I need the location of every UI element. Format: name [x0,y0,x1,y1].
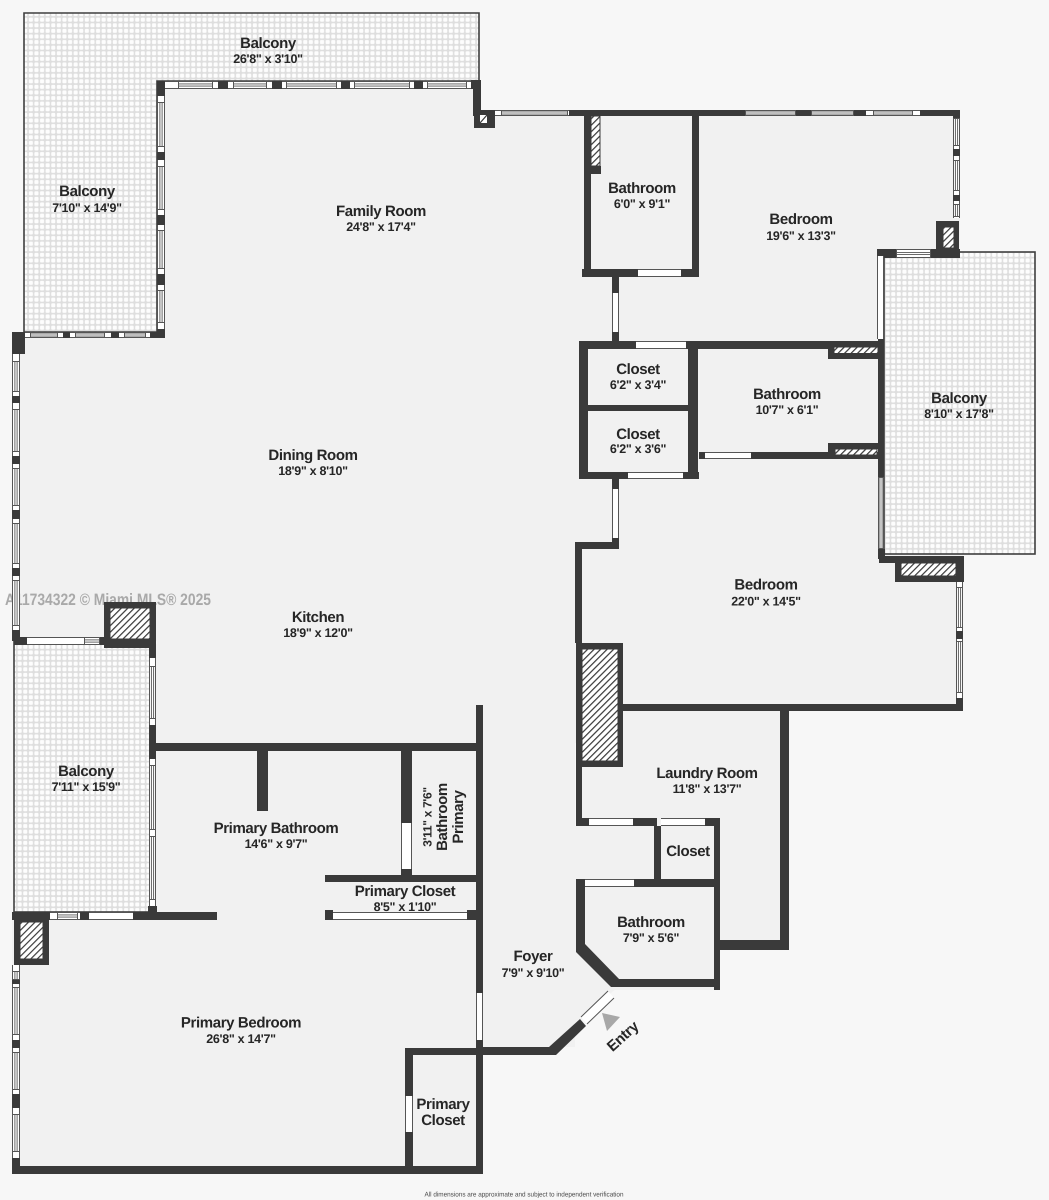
svg-text:Bathroom: Bathroom [753,386,821,403]
svg-text:26'8" x 14'7": 26'8" x 14'7" [206,1032,276,1046]
svg-text:8'5" x 1'10": 8'5" x 1'10" [374,900,437,914]
svg-text:Bedroom: Bedroom [734,577,797,594]
svg-text:18'9" x 12'0": 18'9" x 12'0" [283,626,353,640]
svg-text:7'10" x 14'9": 7'10" x 14'9" [52,201,122,215]
svg-text:Balcony: Balcony [240,35,297,52]
svg-text:11'8" x 13'7": 11'8" x 13'7" [673,782,742,796]
svg-text:22'0" x 14'5": 22'0" x 14'5" [731,595,801,609]
svg-text:Foyer: Foyer [514,948,553,965]
svg-text:Balcony: Balcony [58,763,115,780]
svg-text:3'11" x 7'6": 3'11" x 7'6" [421,787,435,847]
svg-text:Bedroom: Bedroom [769,211,832,228]
svg-text:Closet: Closet [666,843,710,860]
svg-text:Primary Closet: Primary Closet [355,883,456,900]
svg-text:Family Room: Family Room [336,203,426,220]
svg-text:Bathroom: Bathroom [608,180,676,197]
svg-text:7'9" x 9'10": 7'9" x 9'10" [502,966,565,980]
svg-text:18'9" x 8'10": 18'9" x 8'10" [278,464,348,478]
svg-text:7'9" x 5'6": 7'9" x 5'6" [623,931,680,945]
svg-text:Closet: Closet [421,1112,465,1129]
svg-text:Closet: Closet [616,361,660,378]
svg-text:26'8" x 3'10": 26'8" x 3'10" [233,52,303,66]
svg-text:Balcony: Balcony [931,390,988,407]
svg-text:Kitchen: Kitchen [292,609,345,626]
svg-text:6'2" x 3'6": 6'2" x 3'6" [610,442,667,456]
svg-text:Bathroom: Bathroom [617,914,685,931]
svg-text:Closet: Closet [616,426,660,443]
svg-text:6'2" x 3'4": 6'2" x 3'4" [610,378,667,392]
svg-text:8'10" x 17'8": 8'10" x 17'8" [924,407,994,421]
svg-text:Balcony: Balcony [59,183,116,200]
svg-text:Primary Bathroom: Primary Bathroom [214,820,339,837]
svg-text:Laundry Room: Laundry Room [656,765,757,782]
svg-text:10'7" x 6'1": 10'7" x 6'1" [756,403,819,417]
svg-text:Primary: Primary [450,789,467,843]
svg-text:24'8" x 17'4": 24'8" x 17'4" [346,220,416,234]
svg-text:All dimensions are approximate: All dimensions are approximate and subje… [425,1192,624,1199]
svg-text:19'6" x 13'3": 19'6" x 13'3" [766,229,836,243]
svg-text:7'11" x 15'9": 7'11" x 15'9" [52,780,121,794]
svg-text:Bathroom: Bathroom [434,783,451,851]
svg-text:6'0" x 9'1": 6'0" x 9'1" [614,197,671,211]
svg-text:Primary Bedroom: Primary Bedroom [181,1015,301,1032]
svg-text:Primary: Primary [416,1096,470,1113]
svg-text:Dining Room: Dining Room [268,447,357,464]
svg-text:14'6" x 9'7": 14'6" x 9'7" [245,837,308,851]
